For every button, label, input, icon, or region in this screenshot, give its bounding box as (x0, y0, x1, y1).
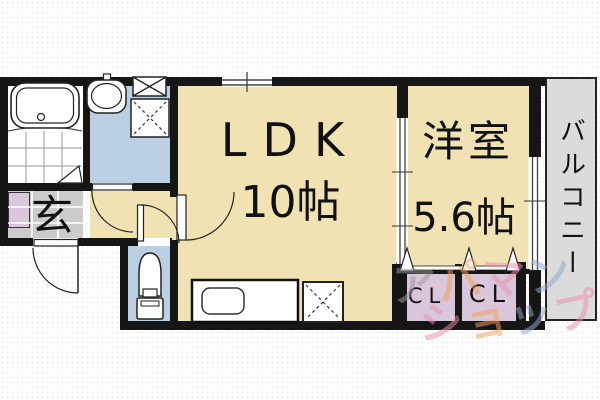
closet-right-label: CL (462, 282, 518, 307)
wall (120, 321, 545, 330)
wall (128, 238, 172, 246)
balcony-label: バルコニー (553, 117, 590, 282)
wall (120, 238, 128, 330)
wall (529, 77, 541, 157)
wall (170, 77, 178, 197)
balcony-area: バルコニー (545, 77, 597, 321)
ldk-label: LDK (188, 116, 393, 164)
wall (0, 77, 8, 246)
ldk-size-label: 10帖 (188, 180, 393, 226)
wall (83, 86, 90, 186)
wall (0, 183, 178, 191)
bathroom-floor (8, 86, 83, 183)
shoe-cabinet (8, 192, 30, 228)
wall (455, 264, 462, 321)
toilet-room-floor (128, 246, 170, 322)
closet-left-label: CL (399, 285, 455, 307)
washroom-floor (90, 86, 170, 183)
wall (397, 77, 408, 118)
entrance-door-icon (33, 238, 78, 293)
hallway-floor (90, 191, 178, 240)
western-room-floor (408, 86, 529, 270)
entrance-label: 玄 (28, 194, 76, 238)
wall (170, 240, 178, 321)
western-room-size-label: 5.6帖 (394, 197, 534, 239)
wall (0, 77, 545, 86)
floorplan-canvas: バルコニー (0, 0, 600, 400)
western-room-label: 洋室 (406, 120, 530, 164)
wall (529, 270, 541, 321)
